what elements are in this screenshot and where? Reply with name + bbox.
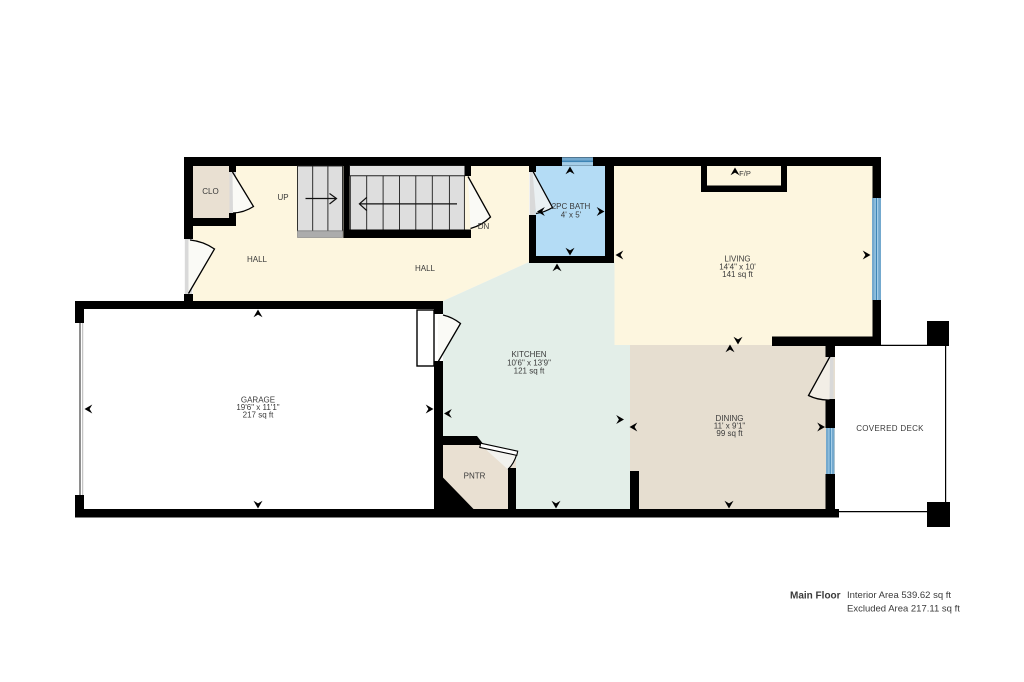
svg-text:HALL: HALL [247, 255, 268, 264]
svg-text:4' x 5': 4' x 5' [561, 211, 582, 220]
svg-text:HALL: HALL [415, 264, 436, 273]
svg-text:UP: UP [277, 193, 288, 202]
svg-text:Interior Area 539.62 sq ft: Interior Area 539.62 sq ft [847, 590, 951, 601]
svg-text:121 sq ft: 121 sq ft [514, 367, 545, 376]
svg-text:PNTR: PNTR [464, 472, 486, 481]
svg-text:CLO: CLO [202, 187, 218, 196]
svg-text:141 sq ft: 141 sq ft [722, 270, 753, 279]
svg-text:F/P: F/P [739, 169, 751, 178]
svg-text:Excluded Area 217.11 sq ft: Excluded Area 217.11 sq ft [847, 604, 960, 615]
svg-text:COVERED DECK: COVERED DECK [856, 424, 924, 433]
svg-text:DN: DN [478, 222, 490, 231]
svg-text:99 sq ft: 99 sq ft [716, 429, 743, 438]
svg-text:217 sq ft: 217 sq ft [243, 411, 274, 420]
svg-text:Main Floor: Main Floor [790, 591, 841, 602]
